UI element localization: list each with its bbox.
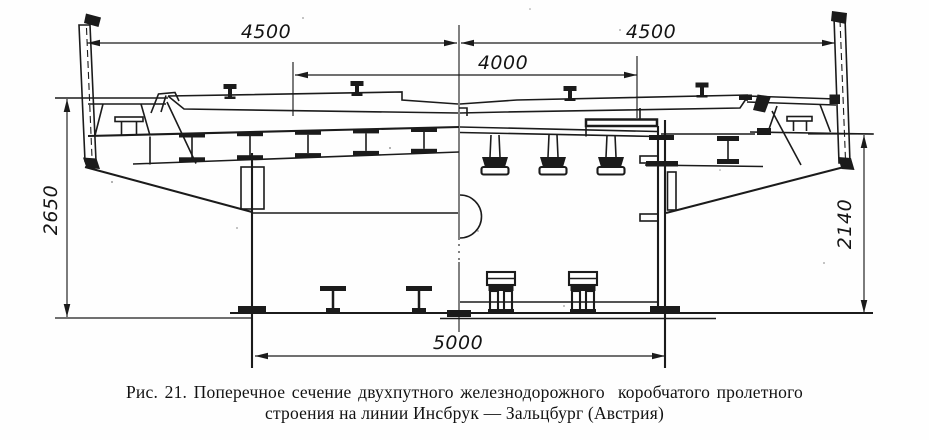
figure-canvas: 4500 4500 4000 5000 2650 bbox=[0, 0, 929, 440]
caption-line-2: строения на линии Инсбрук — Зальцбург (А… bbox=[0, 403, 929, 424]
right-walkway bbox=[739, 95, 873, 166]
floor-beam bbox=[295, 130, 321, 157]
dim-top-right-width: 4500 bbox=[461, 21, 835, 46]
deck-plate-stiffeners bbox=[460, 108, 657, 175]
left-parapet-post bbox=[79, 14, 101, 170]
dim-label-bottom-width: 5000 bbox=[433, 332, 483, 354]
left-soffit bbox=[85, 167, 252, 212]
dim-label-left-height: 2650 bbox=[40, 185, 62, 235]
center-splice bbox=[447, 310, 471, 317]
rail bbox=[696, 83, 709, 98]
dim-label-top-right: 4500 bbox=[626, 21, 676, 43]
dim-label-right-height: 2140 bbox=[834, 199, 856, 249]
floor-beam bbox=[411, 128, 437, 154]
box-girder bbox=[85, 120, 873, 368]
figure-caption: Рис. 21. Поперечное сечение двухпутного … bbox=[0, 382, 929, 425]
web-stiffener-tab bbox=[640, 214, 658, 221]
right-parapet-post bbox=[831, 11, 855, 170]
right-soffit bbox=[666, 166, 848, 213]
curb-section bbox=[753, 95, 771, 113]
floor-beam bbox=[179, 133, 205, 162]
t-stiffener bbox=[320, 286, 346, 313]
dim-bottom-width: 5000 bbox=[255, 332, 665, 359]
rail bbox=[564, 86, 577, 101]
dim-label-track-spacing: 4000 bbox=[478, 52, 528, 74]
web-stiffener-plate bbox=[668, 172, 677, 210]
bearing-jacks bbox=[487, 272, 597, 313]
floor-beam bbox=[646, 135, 678, 167]
left-ballast-trough bbox=[168, 81, 467, 116]
left-web-foot bbox=[238, 306, 266, 313]
rail bbox=[351, 81, 364, 96]
top-flange-plate bbox=[586, 120, 657, 127]
right-web-foot bbox=[650, 306, 680, 313]
floor-beam bbox=[353, 129, 379, 156]
cross-section-drawing: 4500 4500 4000 5000 2650 bbox=[0, 0, 929, 378]
bearing-jack bbox=[569, 272, 597, 313]
right-ballast-trough bbox=[460, 83, 748, 114]
left-floor-beams bbox=[88, 127, 459, 165]
bottom-stiffeners bbox=[320, 286, 432, 313]
hanger-stiffener bbox=[598, 135, 625, 175]
floor-beam bbox=[717, 136, 739, 164]
scan-specks bbox=[111, 8, 825, 307]
t-stiffener bbox=[406, 286, 432, 313]
floor-beam bbox=[237, 132, 263, 160]
walkway-stool bbox=[115, 117, 143, 122]
dim-top-left-width: 4500 bbox=[87, 21, 457, 46]
hanger-stiffener bbox=[482, 135, 509, 175]
caption-line-1: Рис. 21. Поперечное сечение двухпутного … bbox=[0, 382, 929, 403]
hanger-stiffener bbox=[540, 135, 567, 175]
left-walkway bbox=[55, 93, 196, 164]
walkway-stool bbox=[787, 117, 812, 122]
bearing-jack bbox=[487, 272, 515, 313]
right-cantilever-beams bbox=[645, 134, 763, 167]
rail bbox=[224, 84, 237, 99]
dim-label-top-left: 4500 bbox=[241, 21, 291, 43]
